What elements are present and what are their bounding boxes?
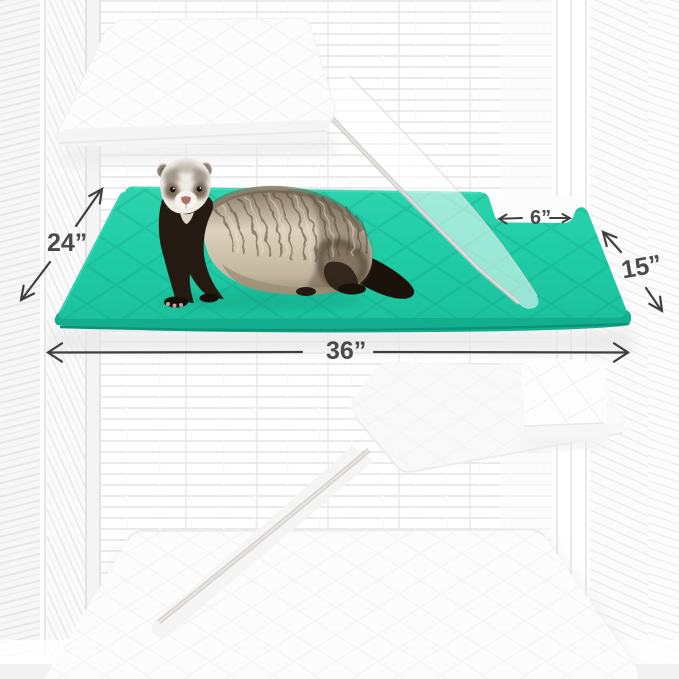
- svg-text:24”: 24”: [47, 229, 87, 257]
- svg-text:36”: 36”: [326, 337, 366, 365]
- svg-text:6”: 6”: [530, 207, 551, 229]
